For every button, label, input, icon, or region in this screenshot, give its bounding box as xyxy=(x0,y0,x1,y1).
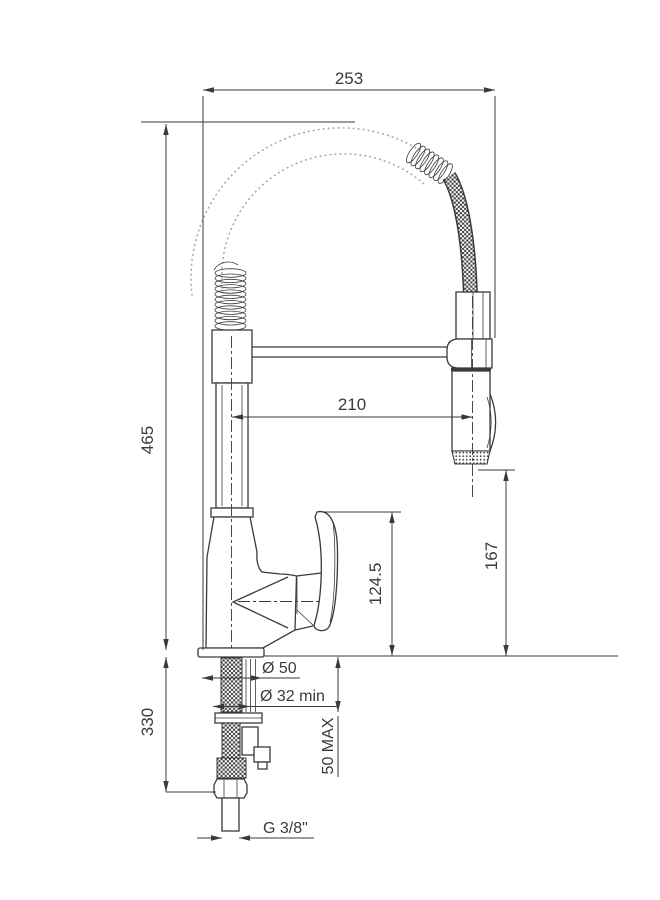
pullout-hose xyxy=(449,176,471,298)
dim-label-height-above: 465 xyxy=(138,426,157,454)
dim-label-mounting-hole: Ø 32 min xyxy=(260,688,325,705)
spout-column xyxy=(211,330,253,517)
supply-pipe xyxy=(222,798,239,831)
hex-nut xyxy=(214,779,247,798)
dim-label-supply-thread: G 3/8" xyxy=(263,820,308,837)
column-ring xyxy=(211,508,253,517)
dim-label-handle-height: 124.5 xyxy=(366,563,385,606)
dim-spout-reach: 210 xyxy=(232,395,473,420)
dim-label-spout-reach: 210 xyxy=(338,395,366,414)
threaded-shank xyxy=(221,658,242,712)
ghost-hose-arcs xyxy=(191,128,424,295)
mixer-body xyxy=(206,512,338,648)
dim-label-spout-width: 253 xyxy=(335,69,363,88)
dim-spray-height: 167 xyxy=(478,470,515,656)
dim-label-base-diameter: Ø 50 xyxy=(262,660,297,677)
support-arm xyxy=(252,347,448,357)
spray-nozzle xyxy=(452,451,490,464)
dim-base-diameter: Ø 50 xyxy=(202,660,300,681)
dim-height-below: 330 xyxy=(138,657,216,792)
dim-label-counter-max: 50 MAX xyxy=(320,717,337,774)
spray-head-body xyxy=(452,371,490,451)
spray-head xyxy=(447,292,496,497)
dim-counter-max: 50 MAX xyxy=(320,657,341,777)
faucet-technical-drawing: 253 465 330 210 124.5 167 xyxy=(0,0,660,900)
drawing-svg: 253 465 330 210 124.5 167 xyxy=(0,0,660,900)
dim-label-height-below: 330 xyxy=(138,708,157,736)
spring-base-block xyxy=(212,330,252,383)
spray-head-holder xyxy=(447,339,492,368)
base-flange xyxy=(198,648,264,657)
handle-neck xyxy=(297,573,322,576)
hose-elbow xyxy=(254,747,270,762)
spray-button xyxy=(490,394,496,451)
supply-hose xyxy=(222,723,240,758)
dim-label-spray-height: 167 xyxy=(482,542,501,570)
spout-spring xyxy=(214,262,246,330)
under-counter-assembly xyxy=(214,658,270,831)
dim-supply-thread: G 3/8" xyxy=(197,820,314,841)
hose-collar xyxy=(217,758,246,778)
